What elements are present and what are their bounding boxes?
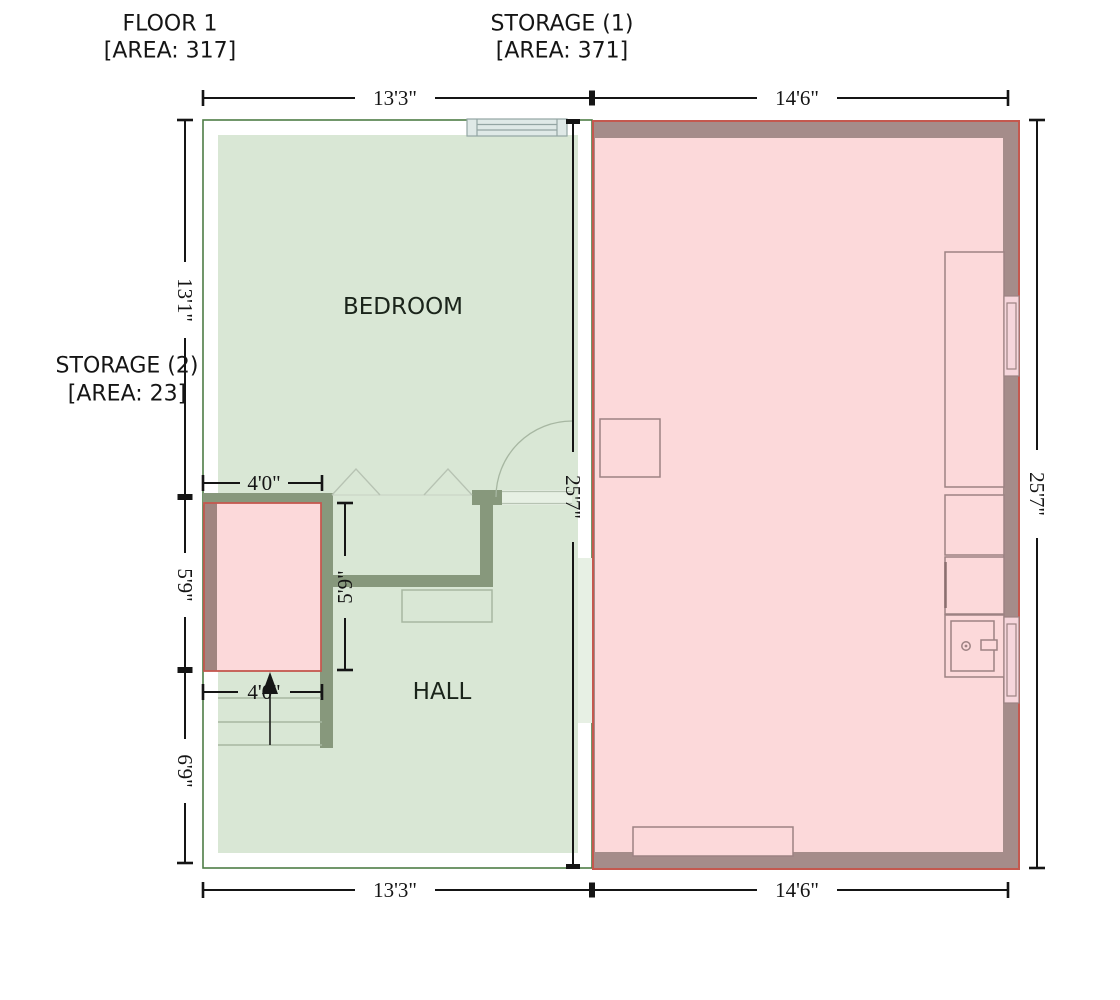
pink-unit-interior (595, 138, 1003, 852)
kitchen-cabinet-1 (945, 495, 1004, 555)
dim-bottom: 13'3" 14'6" (203, 878, 1008, 902)
pink-unit (592, 120, 1020, 870)
dim-storage2-width-top-text: 4'0" (247, 471, 280, 495)
dim-bottom-left: 13'3" (373, 878, 417, 902)
storage2-wall-overlap (204, 503, 217, 671)
floorplan-canvas: 13'3" 14'6" 13'3" 14'6" 13'1" 5'9 (0, 0, 1120, 1000)
dim-left-upper: 13'1" (173, 278, 197, 322)
storage2-room (204, 503, 321, 671)
storage1-title: STORAGE (1) (491, 12, 634, 37)
dim-top-left: 13'3" (373, 86, 417, 110)
hall-label: HALL (413, 679, 472, 705)
kitchen-counter (945, 252, 1004, 487)
dim-right-full: 25'7" (1025, 472, 1049, 516)
storage2-title: STORAGE (2) (56, 354, 199, 379)
storage2-area: [AREA: 23] (68, 382, 186, 407)
dim-top-right: 14'6" (775, 86, 819, 110)
dim-bottom-right: 14'6" (775, 878, 819, 902)
window-right-lower-icon (1004, 617, 1019, 703)
window-right-upper-icon (1004, 296, 1019, 376)
floorplan-page: 13'3" 14'6" 13'3" 14'6" 13'1" 5'9 (0, 0, 1120, 1000)
dim-storage2-width-bottom-text: 4'0" (247, 680, 280, 704)
hall-wall-block (472, 490, 502, 505)
floor1-area: [AREA: 317] (104, 39, 236, 64)
bedroom-label: BEDROOM (343, 294, 463, 320)
dim-divider-full: 25'7" (561, 475, 585, 519)
dim-left: 13'1" 5'9" 6'9" (173, 120, 197, 863)
appliance-icon (945, 615, 1004, 677)
dim-top: 13'3" 14'6" (203, 86, 1008, 110)
dim-storage2-height-text: 5'9" (333, 570, 357, 603)
divider-opening (578, 558, 592, 723)
kitchen-cabinet-2 (945, 557, 1004, 614)
storage2-right-wall (320, 493, 333, 748)
dim-left-lower: 6'9" (173, 754, 197, 787)
floor1-title: FLOOR 1 (122, 12, 217, 37)
pink-room-bottom-furniture (633, 827, 793, 856)
hall-vertical-wall (480, 505, 493, 577)
storage1-area: [AREA: 371] (496, 39, 628, 64)
dim-left-middle: 5'9" (173, 568, 197, 601)
dim-right: 25'7" (1025, 120, 1049, 868)
window-top-icon (467, 119, 567, 136)
